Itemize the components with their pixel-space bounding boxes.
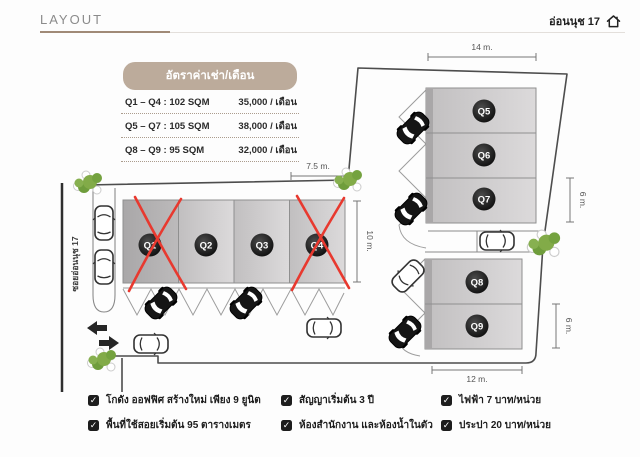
- features-checklist: ✓ โกดัง ออฟฟิศ สร้างใหม่ เพียง 9 ยูนิต ✓…: [88, 393, 634, 433]
- feature-item: ✓ โกดัง ออฟฟิศ สร้างใหม่ เพียง 9 ยูนิต: [88, 393, 281, 408]
- unit-label-q8: Q8: [466, 271, 489, 294]
- checkbox-icon: ✓: [88, 395, 99, 406]
- tree-icon: [527, 230, 560, 256]
- dimension-label-12m: 12 m.: [466, 374, 487, 384]
- checkbox-icon: ✓: [441, 395, 452, 406]
- car-icon: [385, 312, 424, 351]
- project-location: อ่อนนุช 17: [549, 12, 622, 30]
- feature-label: พื้นที่ใช้สอยเริ่มต้น 95 ตารางเมตร: [106, 418, 251, 433]
- tree-icon: [334, 168, 363, 191]
- unit-price: 38,000 / เดือน: [238, 119, 297, 134]
- car-icon: [141, 283, 180, 322]
- car-icon: [480, 230, 514, 252]
- feature-item: ✓ ประปา 20 บาท/หน่วย: [441, 418, 634, 433]
- dimension-6m-lower: [552, 304, 560, 348]
- svg-text:Q5: Q5: [478, 107, 491, 118]
- svg-text:Q2: Q2: [200, 241, 213, 252]
- unit-price: 32,000 / เดือน: [238, 143, 297, 158]
- unit-label-q6: Q6: [473, 144, 496, 167]
- dimension-label-14m: 14 m.: [471, 42, 492, 52]
- feature-label: สัญญาเริ่มต้น 3 ปี: [299, 393, 374, 408]
- unit-range: Q5 – Q7 : 105 SQM: [125, 121, 209, 132]
- site-plan: ซอยอ่อนนุช 17: [0, 0, 640, 457]
- price-table: อัตราค่าเช่า/เดือน Q1 – Q4 : 102 SQM 35,…: [121, 62, 299, 162]
- checkbox-icon: ✓: [281, 420, 292, 431]
- feature-item: ✓ ห้องสำนักงาน และห้องน้ำในตัว: [281, 418, 441, 433]
- price-table-row: Q1 – Q4 : 102 SQM 35,000 / เดือน: [121, 90, 299, 114]
- feature-label: โกดัง ออฟฟิศ สร้างใหม่ เพียง 9 ยูนิต: [106, 393, 261, 408]
- unit-label-q2: Q2: [195, 234, 218, 257]
- dimension-label-6m-lower: 6 m.: [564, 318, 574, 335]
- unit-range: Q1 – Q4 : 102 SQM: [125, 97, 209, 108]
- car-icon: [391, 189, 430, 228]
- dimension-6m-upper: [566, 178, 574, 222]
- car-icon: [307, 317, 341, 339]
- unit-price: 35,000 / เดือน: [238, 95, 297, 110]
- checkbox-icon: ✓: [88, 420, 99, 431]
- feature-label: ไฟฟ้า 7 บาท/หน่วย: [459, 393, 541, 408]
- unit-label-q3: Q3: [251, 234, 274, 257]
- dimension-14m: [428, 53, 536, 61]
- dimension-label-6m-upper: 6 m.: [578, 192, 588, 209]
- feature-label: ประปา 20 บาท/หน่วย: [459, 418, 551, 433]
- header-divider-accent: [40, 31, 170, 33]
- unit-label-q9: Q9: [466, 315, 489, 338]
- price-table-row: Q8 – Q9 : 95 SQM 32,000 / เดือน: [121, 138, 299, 162]
- checkbox-icon: ✓: [281, 395, 292, 406]
- car-icon: [226, 283, 265, 322]
- feature-label: ห้องสำนักงาน และห้องน้ำในตัว: [299, 418, 433, 433]
- dimension-label-7-5m: 7.5 m.: [306, 161, 330, 171]
- dimension-12m: [432, 366, 522, 374]
- unit-range: Q8 – Q9 : 95 SQM: [125, 145, 204, 156]
- feature-item: ✓ ไฟฟ้า 7 บาท/หน่วย: [441, 393, 634, 408]
- car-icon: [93, 206, 115, 240]
- checkbox-icon: ✓: [441, 420, 452, 431]
- svg-text:Q9: Q9: [471, 322, 484, 333]
- svg-text:Q3: Q3: [256, 241, 269, 252]
- unit-label-q7: Q7: [473, 188, 496, 211]
- price-table-row: Q5 – Q7 : 105 SQM 38,000 / เดือน: [121, 114, 299, 138]
- dimension-label-10m: 10 m.: [365, 230, 375, 251]
- layout-poster: ซอยอ่อนนุช 17: [0, 0, 640, 457]
- street-label: ซอยอ่อนนุช 17: [70, 236, 81, 292]
- tree-icon: [88, 348, 117, 371]
- tree-icon: [74, 171, 103, 194]
- car-icon: [93, 250, 115, 284]
- page-title: LAYOUT: [40, 12, 103, 27]
- location-label: อ่อนนุช 17: [549, 12, 600, 30]
- feature-item: ✓ สัญญาเริ่มต้น 3 ปี: [281, 393, 441, 408]
- svg-text:Q7: Q7: [478, 195, 491, 206]
- unit-label-q5: Q5: [473, 100, 496, 123]
- car-icon: [134, 333, 168, 355]
- home-icon: [605, 13, 622, 30]
- svg-text:Q6: Q6: [478, 151, 491, 162]
- price-table-title: อัตราค่าเช่า/เดือน: [123, 62, 297, 90]
- svg-text:Q8: Q8: [471, 278, 484, 289]
- dimension-10m: [353, 201, 361, 282]
- feature-item: ✓ พื้นที่ใช้สอยเริ่มต้น 95 ตารางเมตร: [88, 418, 281, 433]
- two-way-arrow-icon: [87, 321, 119, 350]
